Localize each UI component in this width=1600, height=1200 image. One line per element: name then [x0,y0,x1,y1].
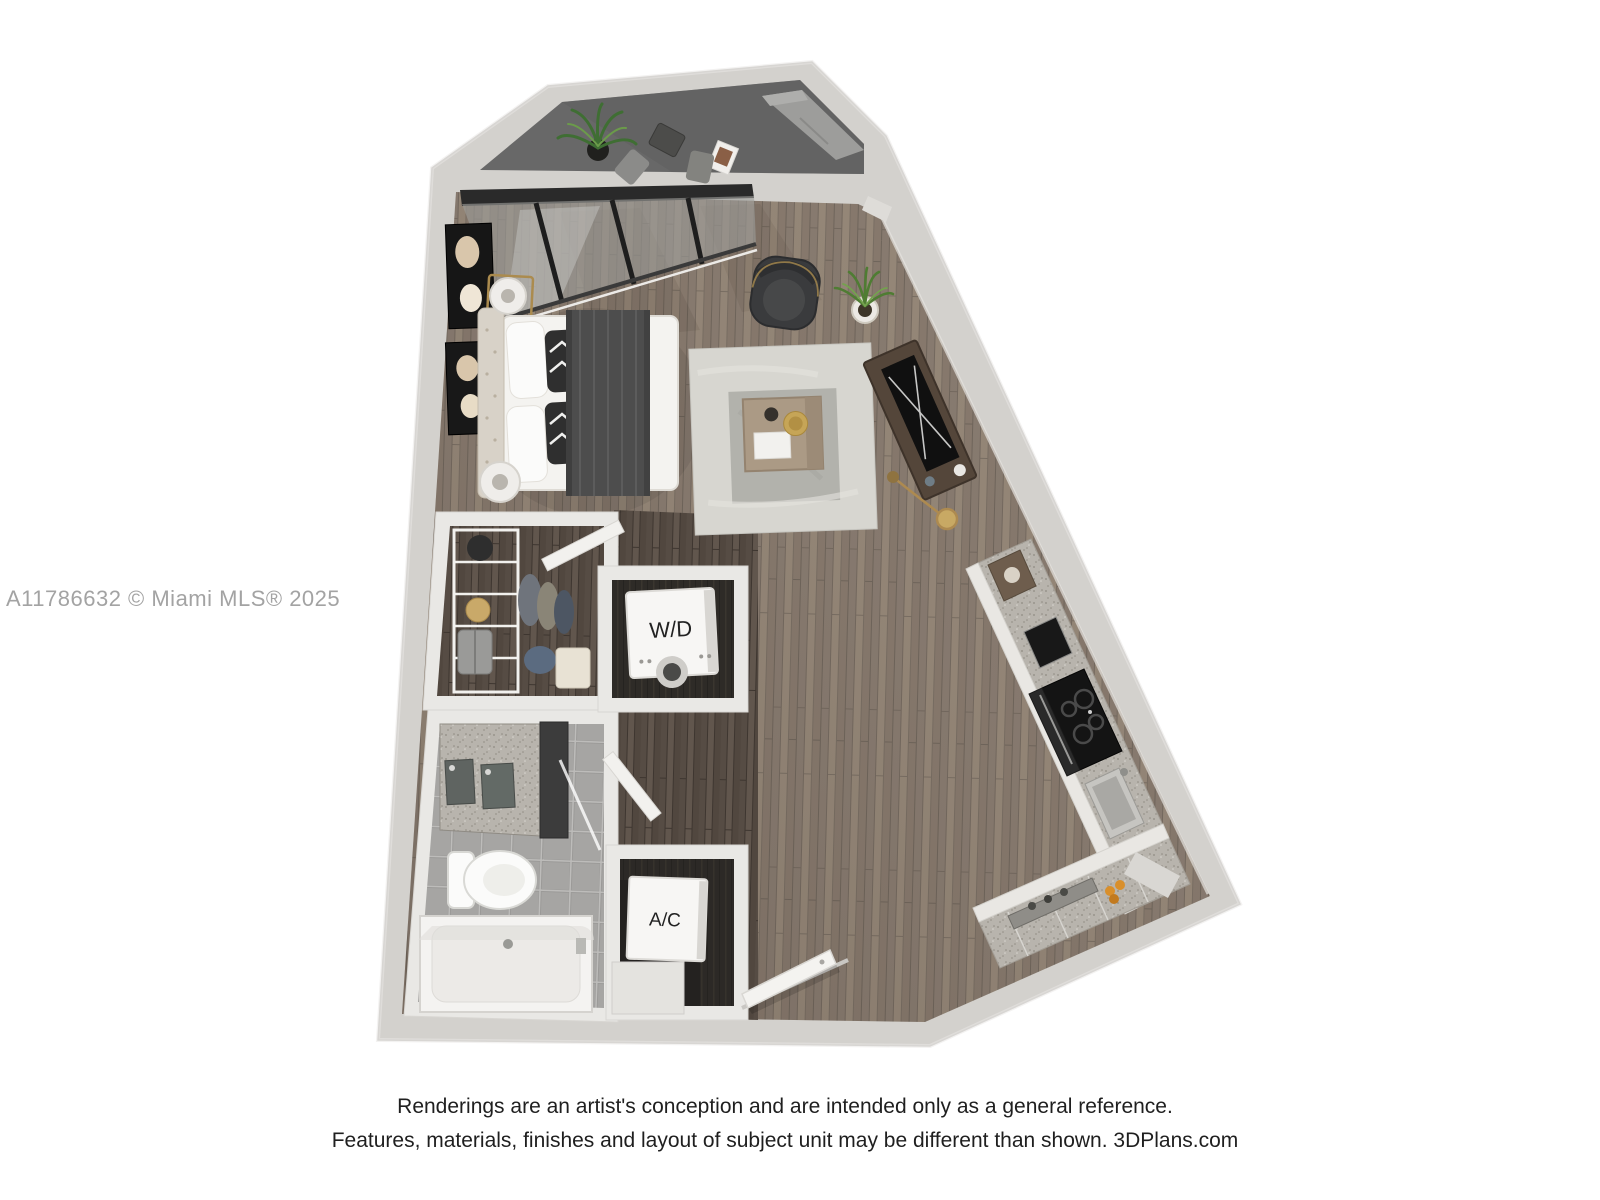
floor-plan-page: A11786632 © Miami MLS® 2025 [0,0,1600,1200]
laundry-closet: W/D [598,566,748,712]
disclaimer-line-1: Renderings are an artist's conception an… [0,1090,1570,1124]
accent-chair [747,254,822,333]
bedside-lamp-bottom [480,462,520,502]
ac-closet: A/C [606,845,748,1020]
ac-step [612,962,684,1014]
wd-label: W/D [649,616,693,643]
bathtub [418,916,594,1012]
bedside-lamp-top [490,278,526,314]
closet-room [423,512,624,710]
disclaimer: Renderings are an artist's conception an… [0,1090,1570,1158]
ac-unit: A/C [627,877,708,962]
disclaimer-line-2: Features, materials, finishes and layout… [0,1124,1570,1158]
bathroom-vanity [440,722,568,838]
washer-dryer: W/D [626,588,719,690]
ac-label: A/C [649,909,681,931]
floor-plan-rendering: W/D A/C [0,0,1600,1200]
bed-blanket [566,310,650,496]
coffee-table [743,397,823,472]
toilet [448,851,536,909]
